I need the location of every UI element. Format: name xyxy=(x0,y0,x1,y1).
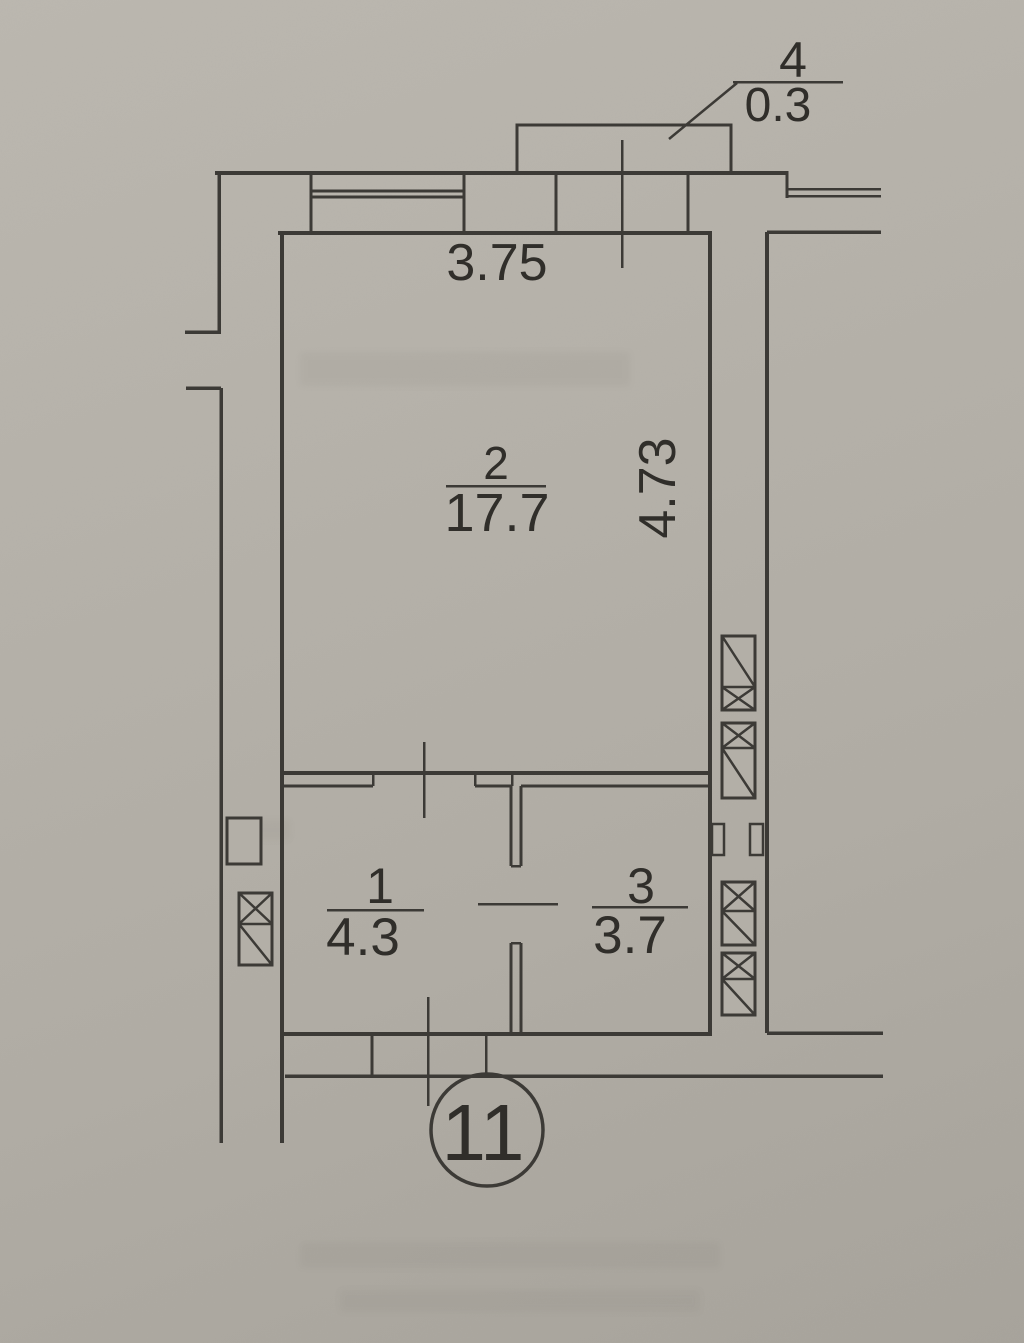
corridor-door-jamb-block xyxy=(712,824,724,855)
room1-number-label: 1 xyxy=(366,858,394,914)
room2-number-label: 2 xyxy=(483,437,509,489)
dimension-right-height: 4.73 xyxy=(629,437,687,538)
ghost-smudge xyxy=(300,1242,720,1268)
shaft-right-3 xyxy=(722,882,755,945)
room3-area-label: 3.7 xyxy=(593,906,667,965)
shaft-right-1 xyxy=(722,636,755,710)
shaft-right-2 xyxy=(722,723,755,798)
shaft-left xyxy=(239,893,272,965)
shaft-box xyxy=(722,882,755,945)
corridor-door-jamb-block xyxy=(750,824,763,855)
balcony-area-label: 0.3 xyxy=(745,79,812,132)
room2-area-label: 17.7 xyxy=(444,483,549,543)
room1-area-label: 4.3 xyxy=(326,908,400,967)
floor-plan-drawing: 4 0.3 3.75 4.73 2 17.7 1 4.3 3 3.7 11 xyxy=(0,0,1024,1343)
dimension-top-width: 3.75 xyxy=(446,234,547,292)
ghost-smudge xyxy=(340,1290,700,1312)
shaft-right-4 xyxy=(722,953,755,1015)
ghost-smudge xyxy=(300,352,630,386)
unit-number-label: 11 xyxy=(441,1088,524,1177)
scanned-floor-plan-page: 4 0.3 3.75 4.73 2 17.7 1 4.3 3 3.7 11 xyxy=(0,0,1024,1343)
left-wall-niche xyxy=(227,818,261,864)
